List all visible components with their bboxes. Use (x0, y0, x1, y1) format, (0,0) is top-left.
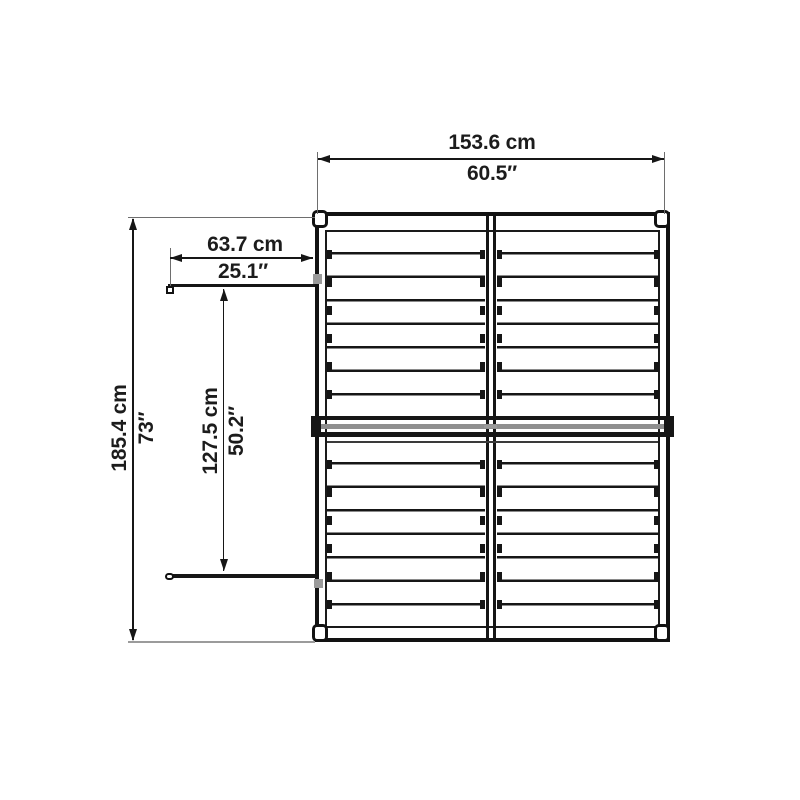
overall-depth-metric-label: 185.4 cm (109, 384, 131, 471)
dimension-line-door-width (170, 257, 313, 259)
open-door-bottom-leaf (166, 574, 315, 578)
open-door-top-leaf (168, 284, 315, 287)
dimension-arrow-icon (301, 254, 313, 262)
extension-line (128, 641, 315, 643)
dimension-arrow-icon (129, 629, 137, 641)
panel-notch-strip (654, 441, 659, 627)
dimension-arrow-icon (129, 218, 137, 230)
door-handle (166, 286, 174, 294)
panel-notch-strip (327, 231, 332, 416)
dimension-diagram-canvas: 153.6 cm 60.5″ 63.7 cm 25.1″ 185.4 cm 73… (0, 0, 800, 800)
ridge-beam-end-cap (311, 416, 321, 437)
door-hinge-mark (314, 579, 323, 588)
ridge-beam-center-mark (484, 425, 497, 428)
door-hinge-mark (313, 274, 322, 284)
roof-panel-bottom-right (497, 441, 659, 627)
doors-span-imperial-label: 50.2″ (226, 406, 248, 456)
panel-notch-strip (497, 231, 502, 416)
corner-bracket (312, 210, 328, 228)
panel-notch-strip (654, 231, 659, 416)
dimension-arrow-icon (318, 155, 330, 163)
extension-line (128, 217, 315, 218)
dimension-arrow-icon (170, 254, 182, 262)
roof-panel-top-left (327, 231, 485, 416)
doors-span-metric-label: 127.5 cm (200, 387, 222, 474)
roof-panel-top-right (497, 231, 659, 416)
corner-bracket (312, 624, 328, 642)
panel-notch-strip (497, 441, 502, 627)
corner-bracket (654, 210, 670, 228)
dimension-arrow-icon (652, 155, 664, 163)
dimension-arrow-icon (220, 289, 228, 301)
door-width-imperial-label: 25.1″ (218, 261, 268, 283)
door-handle (165, 573, 174, 580)
ridge-beam-bottom-line (311, 432, 674, 437)
panel-notch-strip (480, 231, 485, 416)
door-width-metric-label: 63.7 cm (207, 234, 283, 256)
panel-notch-strip (327, 441, 332, 627)
overall-depth-imperial-label: 73″ (136, 412, 158, 445)
ridge-beam-top-line (311, 416, 674, 420)
ridge-beam-end-cap (664, 416, 674, 437)
panel-notch-strip (480, 441, 485, 627)
dimension-line-overall-width (318, 158, 664, 160)
dimension-arrow-icon (220, 559, 228, 571)
ridge-beam-under-line (327, 441, 658, 443)
overall-width-metric-label: 153.6 cm (448, 132, 535, 154)
roof-panel-bottom-left (327, 441, 485, 627)
dimension-line-overall-depth (132, 219, 134, 640)
corner-bracket (654, 624, 670, 642)
overall-width-imperial-label: 60.5″ (467, 163, 517, 185)
